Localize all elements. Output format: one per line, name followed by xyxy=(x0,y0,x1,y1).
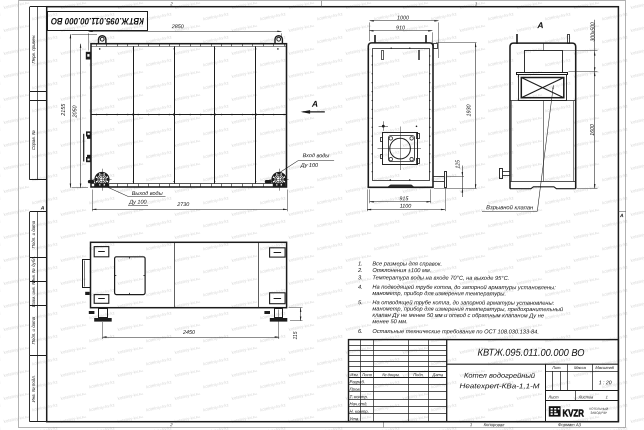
svg-text:1000: 1000 xyxy=(397,15,409,21)
svg-text:Разраб.: Разраб. xyxy=(349,379,365,384)
svg-text:Формат А3: Формат А3 xyxy=(558,422,582,427)
svg-text:Справ. №: Справ. № xyxy=(31,130,36,150)
svg-text:Копировал: Копировал xyxy=(484,422,505,427)
svg-text:менее 50 мм.: менее 50 мм. xyxy=(372,319,407,325)
svg-text:Утв.: Утв. xyxy=(349,416,359,421)
svg-text:Отклонения ±100 мм.: Отклонения ±100 мм. xyxy=(372,268,431,274)
svg-text:ЗАВОД РЗР: ЗАВОД РЗР xyxy=(590,411,607,415)
svg-text:Нач.отд.: Нач.отд. xyxy=(349,401,367,406)
svg-text:Дата: Дата xyxy=(432,372,444,377)
svg-text:Н. контр.: Н. контр. xyxy=(349,409,368,414)
svg-text:Все размеры для справок.: Все размеры для справок. xyxy=(372,261,442,267)
svg-text:Вход воды: Вход воды xyxy=(303,153,330,159)
svg-text:Масштаб: Масштаб xyxy=(595,365,614,370)
svg-text:Инв. № дубл.: Инв. № дубл. xyxy=(31,256,36,283)
svg-text:Пров.: Пров. xyxy=(349,387,360,392)
svg-text:300х500: 300х500 xyxy=(590,22,596,41)
svg-text:Ду 100: Ду 100 xyxy=(300,163,319,169)
svg-text:Выход воды: Выход воды xyxy=(132,191,163,197)
svg-text:1: 1 xyxy=(470,422,472,427)
svg-text:Подп. и дата: Подп. и дата xyxy=(31,220,36,248)
svg-text:125: 125 xyxy=(455,160,461,169)
svg-text:3.: 3. xyxy=(358,275,363,281)
svg-text:Инв. № подл.: Инв. № подл. xyxy=(31,375,36,402)
svg-text:4.: 4. xyxy=(358,285,363,291)
svg-text:Лист: Лист xyxy=(547,394,559,399)
svg-text:1: 1 xyxy=(606,394,608,399)
svg-text:KVZR: KVZR xyxy=(562,407,584,419)
svg-text:Взрывной клапан: Взрывной клапан xyxy=(486,204,534,211)
svg-text:6.: 6. xyxy=(358,329,363,335)
svg-text:1600: 1600 xyxy=(590,124,596,136)
svg-text:1930: 1930 xyxy=(466,105,472,117)
svg-text:1 : 20: 1 : 20 xyxy=(599,380,612,386)
svg-text:910: 910 xyxy=(396,25,405,31)
svg-text:2850: 2850 xyxy=(171,24,184,30)
svg-text:Перв. примен.: Перв. примен. xyxy=(31,34,36,63)
svg-text:А: А xyxy=(40,205,45,211)
svg-text:КВТЖ.095.011.00.000 ВО: КВТЖ.095.011.00.000 ВО xyxy=(477,348,584,359)
svg-text:Масса: Масса xyxy=(574,365,587,370)
svg-text:Подп.: Подп. xyxy=(413,372,424,377)
svg-text:А: А xyxy=(536,20,543,30)
svg-text:А: А xyxy=(311,99,318,109)
svg-text:2730: 2730 xyxy=(176,202,189,208)
svg-text:1.: 1. xyxy=(358,261,363,267)
svg-text:2050: 2050 xyxy=(73,106,79,119)
svg-text:2450: 2450 xyxy=(182,330,195,336)
svg-text:КВТЖ.095.011.00.000 ВО: КВТЖ.095.011.00.000 ВО xyxy=(51,16,144,26)
svg-text:Ду 100: Ду 100 xyxy=(128,200,147,206)
svg-text:Остальные технические требован: Остальные технические требования по ОСТ … xyxy=(372,329,539,336)
svg-text:915: 915 xyxy=(399,196,409,202)
svg-text:1: 1 xyxy=(475,1,477,6)
svg-text:Т. контр.: Т. контр. xyxy=(349,394,368,399)
svg-text:Heatexpert-КВа-1,1-М: Heatexpert-КВа-1,1-М xyxy=(459,383,539,390)
svg-text:Котел водогрейный: Котел водогрейный xyxy=(464,372,535,380)
svg-text:Листов: Листов xyxy=(578,394,594,399)
svg-text:Лит.: Лит. xyxy=(551,365,561,370)
svg-text:Изм.: Изм. xyxy=(350,372,359,377)
svg-text:Взам. инв. №: Взам. инв. № xyxy=(31,280,36,307)
svg-text:манометр, прибор для измерения: манометр, прибор для измерения температу… xyxy=(372,291,506,297)
svg-text:Лист: Лист xyxy=(361,372,373,377)
svg-text:Температура воды на входе 70°С: Температура воды на входе 70°С, на выход… xyxy=(372,275,509,281)
svg-text:5.: 5. xyxy=(358,300,363,306)
svg-text:Подп. и дата: Подп. и дата xyxy=(31,316,36,344)
svg-text:А: А xyxy=(619,213,624,219)
svg-text:2.: 2. xyxy=(357,268,363,274)
svg-text:№ докум.: № докум. xyxy=(382,372,400,377)
svg-text:115: 115 xyxy=(293,331,299,339)
svg-text:2155: 2155 xyxy=(61,103,67,117)
svg-text:1100: 1100 xyxy=(400,204,412,210)
